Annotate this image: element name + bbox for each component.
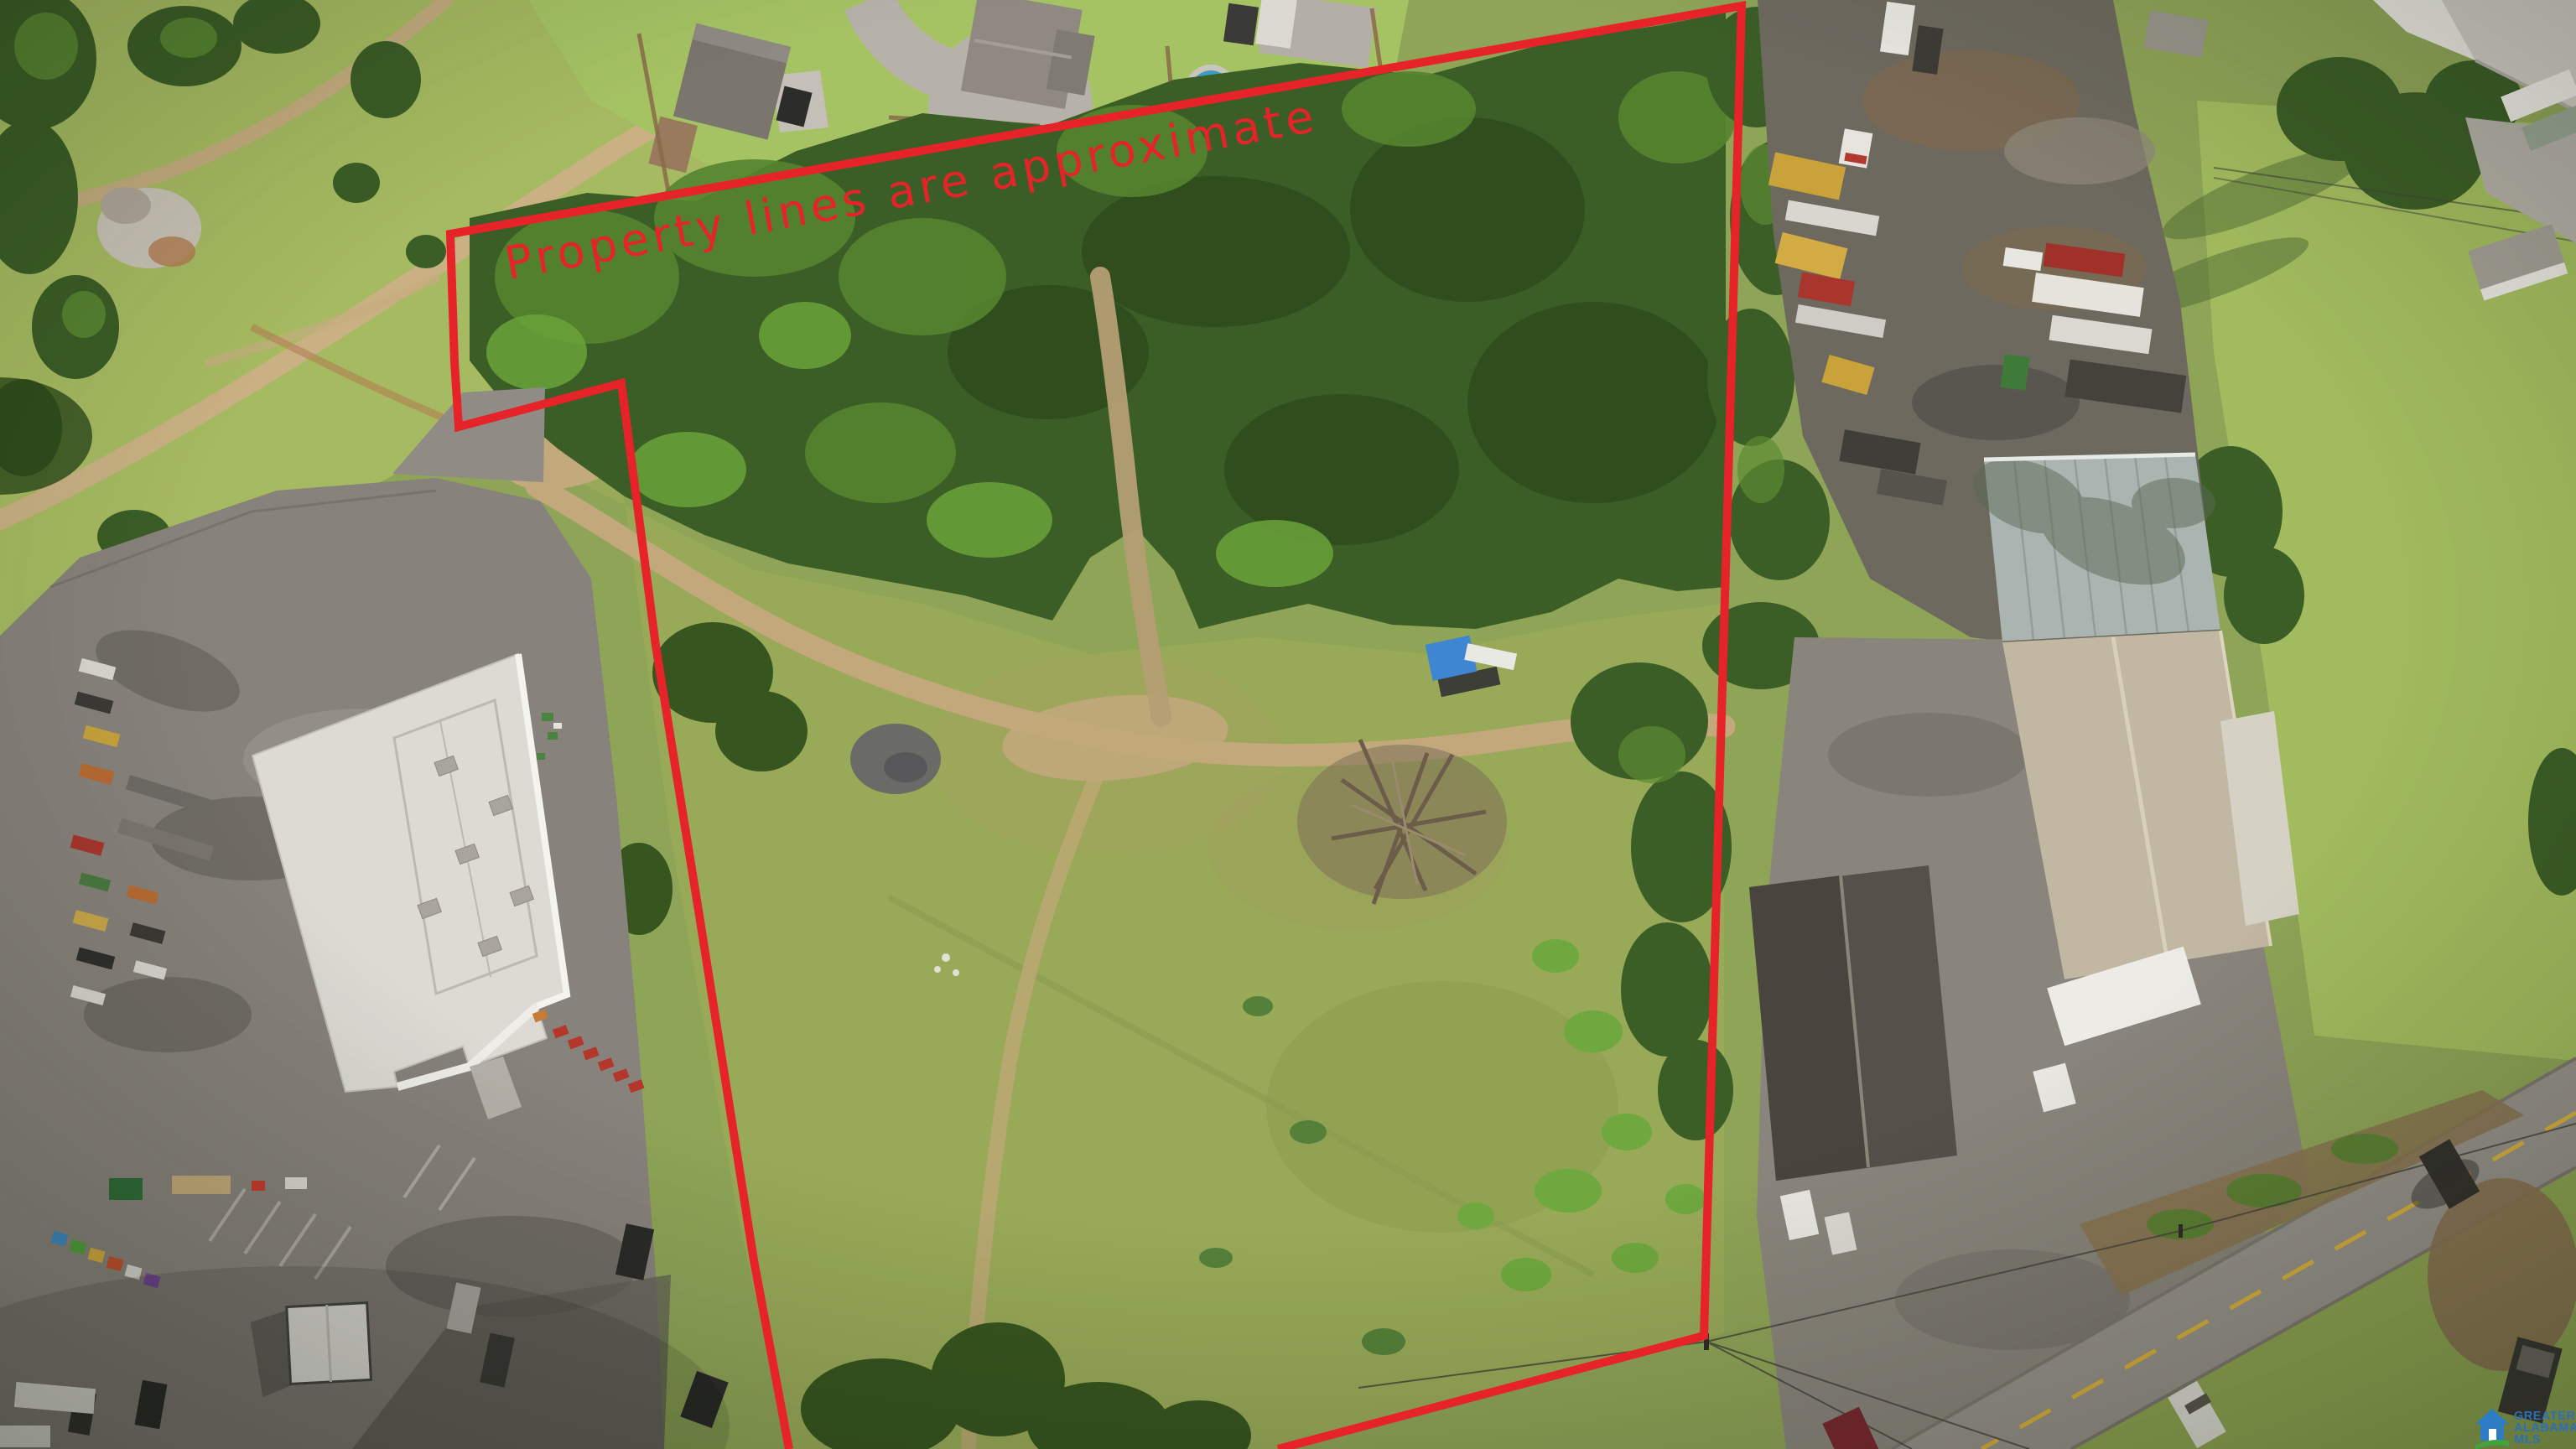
watermark-line-3: MLS <box>2514 1433 2541 1446</box>
aerial-photo: Property lines are approximate GREATER A… <box>0 0 2576 1449</box>
aerial-photo-frame: Property lines are approximate GREATER A… <box>0 0 2576 1449</box>
vignette <box>0 0 2576 1449</box>
house-door-icon <box>2489 1429 2496 1441</box>
